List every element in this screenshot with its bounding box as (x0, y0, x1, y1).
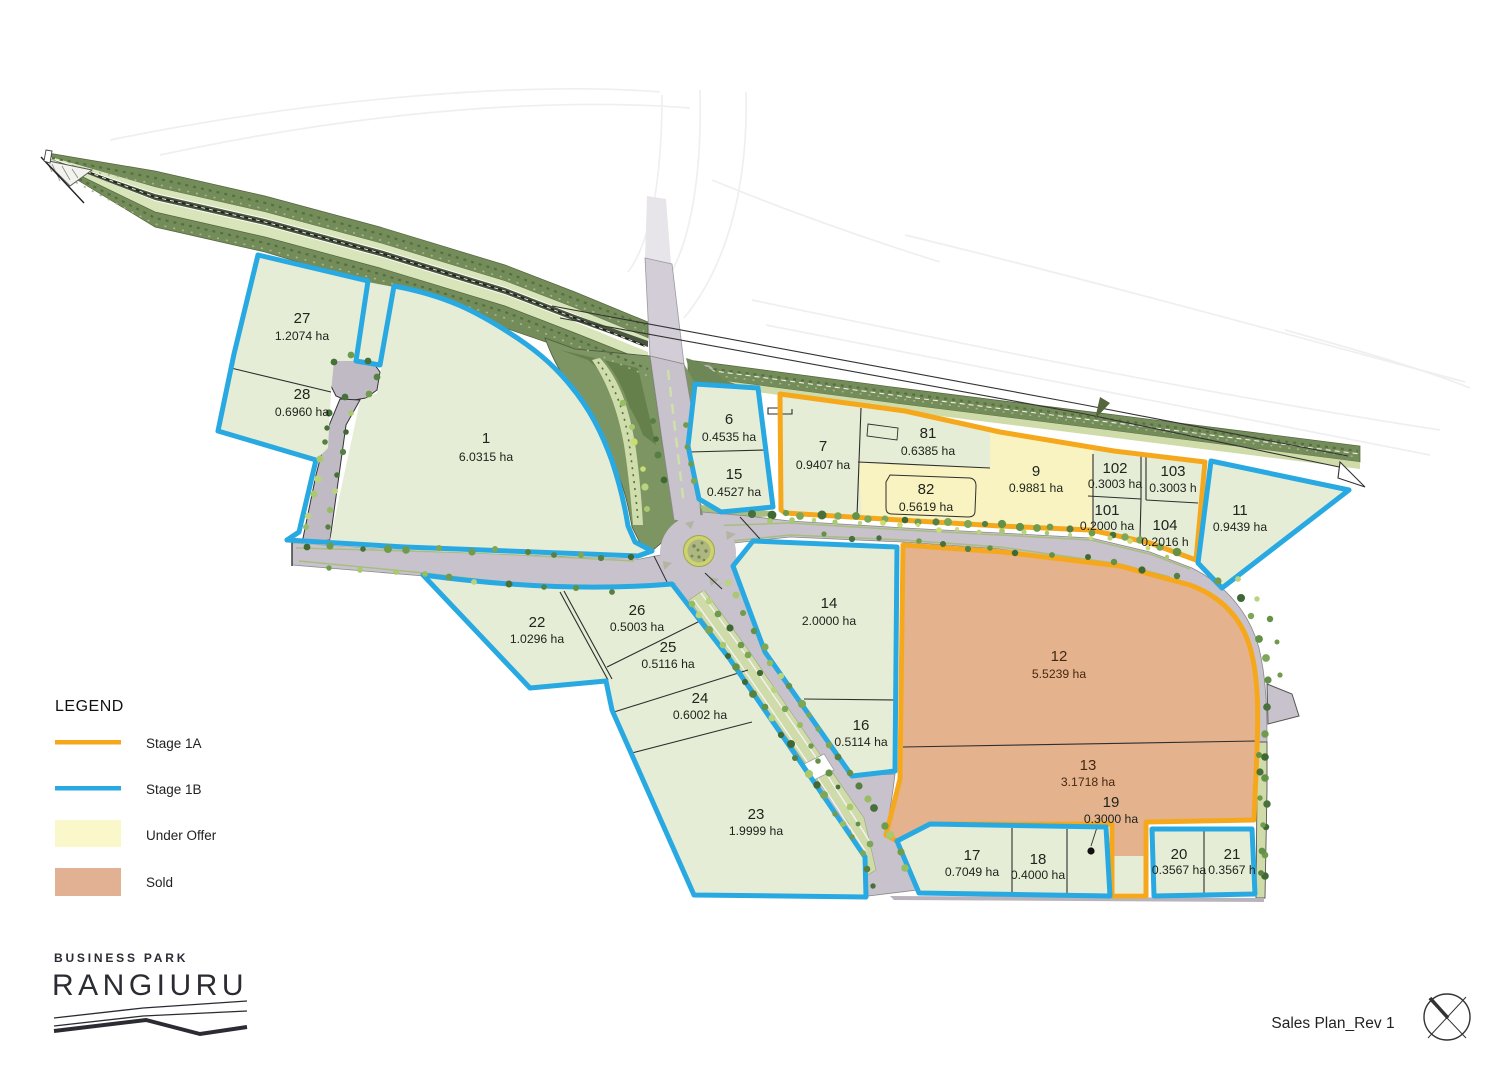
svg-text:1.2074 ha: 1.2074 ha (275, 329, 329, 343)
svg-text:5.5239 ha: 5.5239 ha (1032, 667, 1086, 681)
svg-text:17: 17 (964, 847, 981, 864)
svg-text:Sold: Sold (146, 875, 173, 890)
svg-text:0.3003 ha: 0.3003 ha (1088, 477, 1142, 491)
svg-text:101: 101 (1094, 502, 1119, 519)
svg-text:24: 24 (692, 690, 709, 707)
svg-text:0.5619 ha: 0.5619 ha (899, 500, 953, 514)
svg-text:14: 14 (821, 595, 838, 612)
svg-text:3.1718 ha: 3.1718 ha (1061, 775, 1115, 789)
svg-text:0.9439 ha: 0.9439 ha (1213, 520, 1267, 534)
svg-text:0.6960 ha: 0.6960 ha (275, 405, 329, 419)
svg-text:102: 102 (1102, 460, 1127, 477)
svg-text:0.4000 ha: 0.4000 ha (1011, 868, 1065, 882)
svg-text:28: 28 (294, 386, 311, 403)
svg-text:2.0000 ha: 2.0000 ha (802, 614, 856, 628)
svg-text:0.3567 h: 0.3567 h (1208, 863, 1255, 877)
svg-text:0.3003 h: 0.3003 h (1149, 481, 1196, 495)
svg-text:81: 81 (920, 425, 937, 442)
svg-text:0.3567 ha: 0.3567 ha (1152, 863, 1206, 877)
svg-text:16: 16 (853, 717, 870, 734)
svg-text:23: 23 (748, 806, 765, 823)
svg-text:1.0296 ha: 1.0296 ha (510, 632, 564, 646)
svg-text:82: 82 (918, 481, 935, 498)
svg-text:11: 11 (1232, 502, 1248, 519)
svg-text:Stage 1A: Stage 1A (146, 736, 202, 751)
svg-text:1: 1 (482, 430, 490, 447)
svg-text:0.5003 ha: 0.5003 ha (610, 620, 664, 634)
svg-text:0.3000 ha: 0.3000 ha (1084, 812, 1138, 826)
svg-text:0.5114 ha: 0.5114 ha (834, 735, 888, 749)
svg-text:0.4535 ha: 0.4535 ha (702, 430, 756, 444)
svg-text:104: 104 (1152, 517, 1177, 534)
svg-text:0.5116 ha: 0.5116 ha (641, 657, 695, 671)
svg-text:20: 20 (1171, 846, 1188, 863)
svg-text:0.2000 ha: 0.2000 ha (1080, 519, 1134, 533)
svg-text:Stage 1B: Stage 1B (146, 782, 202, 797)
svg-text:15: 15 (726, 466, 743, 483)
svg-text:7: 7 (819, 438, 827, 455)
svg-text:18: 18 (1030, 851, 1047, 868)
svg-text:103: 103 (1160, 463, 1185, 480)
svg-text:0.9407 ha: 0.9407 ha (796, 458, 850, 472)
svg-text:RANGIURU: RANGIURU (52, 969, 248, 1002)
svg-text:6.0315 ha: 6.0315 ha (459, 450, 513, 464)
svg-text:25: 25 (660, 639, 677, 656)
svg-text:0.6002 ha: 0.6002 ha (673, 708, 727, 722)
svg-text:9: 9 (1032, 463, 1040, 480)
svg-text:22: 22 (529, 614, 546, 631)
svg-text:0.2016 h: 0.2016 h (1141, 535, 1188, 549)
svg-text:12: 12 (1051, 648, 1068, 665)
svg-text:BUSINESS PARK: BUSINESS PARK (54, 951, 188, 965)
svg-text:LEGEND: LEGEND (55, 698, 124, 715)
svg-text:1.9999 ha: 1.9999 ha (729, 824, 783, 838)
svg-text:13: 13 (1080, 757, 1097, 774)
svg-text:0.6385 ha: 0.6385 ha (901, 444, 955, 458)
svg-text:Under Offer: Under Offer (146, 828, 217, 843)
svg-text:Sales Plan_Rev 1: Sales Plan_Rev 1 (1271, 1015, 1394, 1032)
svg-text:21: 21 (1224, 846, 1241, 863)
svg-text:27: 27 (294, 310, 311, 327)
svg-text:19: 19 (1103, 794, 1120, 811)
svg-text:0.9881 ha: 0.9881 ha (1009, 481, 1063, 495)
svg-text:26: 26 (629, 602, 646, 619)
svg-text:0.4527 ha: 0.4527 ha (707, 485, 761, 499)
svg-text:0.7049 ha: 0.7049 ha (945, 865, 999, 879)
svg-text:6: 6 (725, 411, 733, 428)
